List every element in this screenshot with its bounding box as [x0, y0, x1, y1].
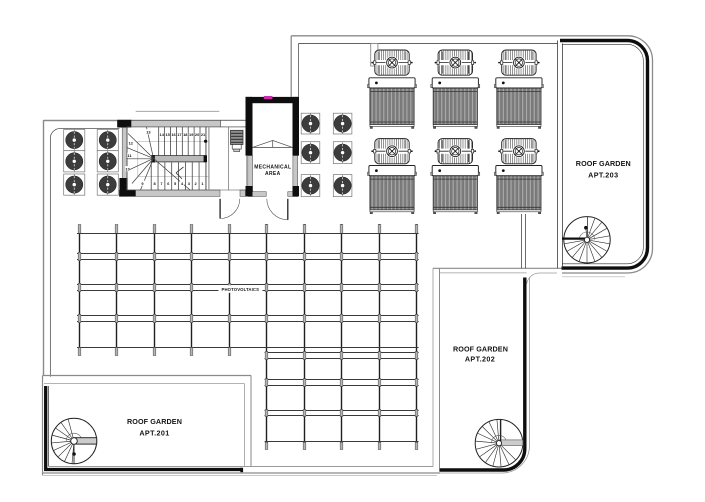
- svg-text:ROOF GARDEN: ROOF GARDEN: [127, 417, 182, 426]
- svg-text:APT.201: APT.201: [139, 428, 169, 437]
- svg-text:17: 17: [177, 132, 181, 137]
- svg-text:7: 7: [160, 181, 162, 186]
- svg-text:10: 10: [125, 167, 129, 172]
- svg-text:MECHANICAL: MECHANICAL: [254, 165, 291, 171]
- svg-text:AREA: AREA: [265, 171, 281, 177]
- svg-text:ROOF GARDEN: ROOF GARDEN: [453, 345, 508, 354]
- svg-text:PHOTOVOLTAICS: PHOTOVOLTAICS: [222, 287, 260, 292]
- svg-text:APT.203: APT.203: [588, 170, 618, 179]
- svg-text:APT.202: APT.202: [465, 355, 495, 364]
- svg-text:20: 20: [195, 132, 199, 137]
- svg-text:ROOF GARDEN: ROOF GARDEN: [576, 159, 631, 168]
